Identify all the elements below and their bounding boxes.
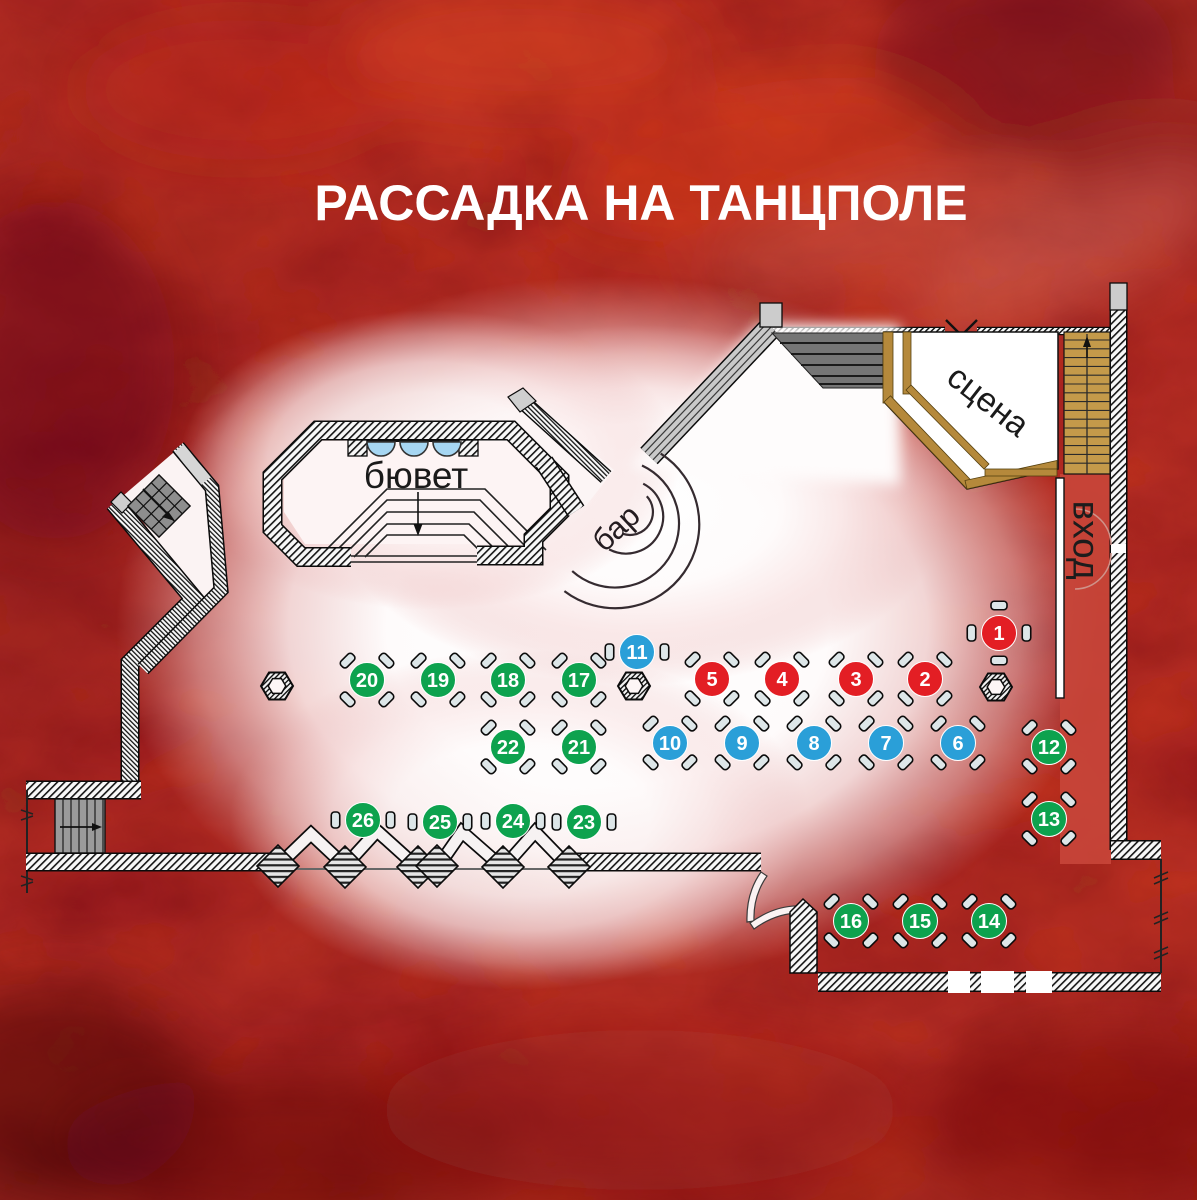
- svg-text:21: 21: [568, 737, 590, 759]
- svg-text:5: 5: [706, 669, 717, 691]
- svg-text:бювет: бювет: [364, 455, 469, 496]
- svg-text:25: 25: [429, 812, 451, 834]
- svg-text:20: 20: [356, 670, 378, 692]
- svg-text:8: 8: [808, 733, 819, 755]
- svg-text:15: 15: [909, 911, 931, 933]
- svg-text:16: 16: [840, 911, 862, 933]
- svg-text:10: 10: [659, 733, 681, 755]
- svg-text:19: 19: [427, 670, 449, 692]
- svg-text:18: 18: [497, 670, 519, 692]
- svg-text:14: 14: [978, 911, 1001, 933]
- svg-text:7: 7: [880, 733, 891, 755]
- svg-text:11: 11: [626, 642, 647, 664]
- svg-text:24: 24: [502, 811, 525, 833]
- svg-text:вход: вход: [1066, 500, 1107, 579]
- svg-text:13: 13: [1038, 809, 1060, 831]
- svg-text:6: 6: [952, 733, 963, 755]
- svg-text:3: 3: [850, 669, 861, 691]
- svg-text:4: 4: [776, 669, 788, 691]
- svg-text:1: 1: [993, 623, 1004, 645]
- svg-text:23: 23: [573, 812, 595, 834]
- svg-text:9: 9: [736, 733, 747, 755]
- svg-text:22: 22: [497, 737, 519, 759]
- svg-text:26: 26: [352, 810, 374, 832]
- svg-text:17: 17: [568, 670, 590, 692]
- svg-text:2: 2: [919, 669, 930, 691]
- svg-text:РАССАДКА НА ТАНЦПОЛЕ: РАССАДКА НА ТАНЦПОЛЕ: [314, 175, 967, 231]
- svg-text:12: 12: [1038, 737, 1060, 759]
